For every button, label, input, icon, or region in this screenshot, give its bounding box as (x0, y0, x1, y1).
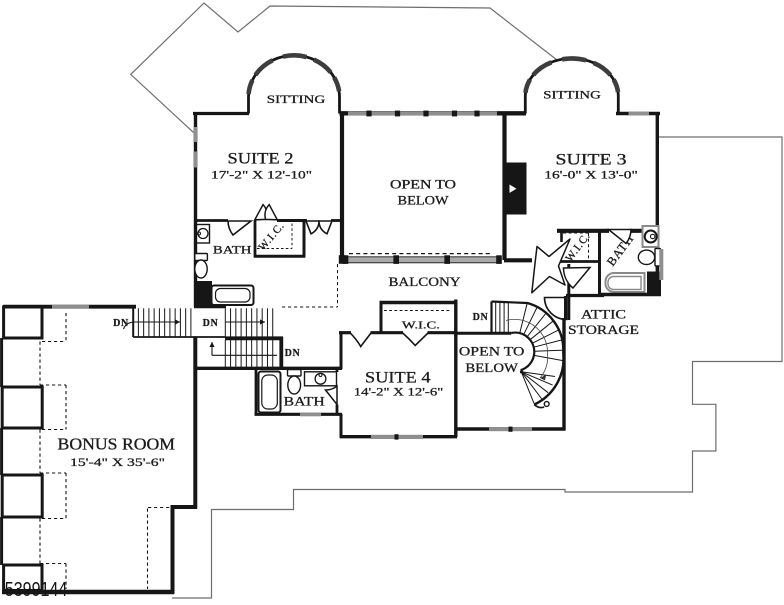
svg-text:DN: DN (113, 318, 129, 329)
svg-text:16'-0" X 13'-0": 16'-0" X 13'-0" (544, 168, 638, 182)
svg-text:BATH: BATH (284, 394, 325, 409)
svg-text:15'-4" X 35'-6": 15'-4" X 35'-6" (70, 455, 165, 469)
svg-text:BATH: BATH (213, 243, 252, 257)
svg-text:DN: DN (473, 312, 489, 323)
svg-text:ATTIC: ATTIC (581, 308, 626, 322)
svg-text:5399144: 5399144 (5, 579, 68, 600)
svg-text:STORAGE: STORAGE (568, 323, 639, 337)
svg-text:SUITE 2: SUITE 2 (228, 151, 294, 168)
svg-text:BELOW: BELOW (398, 194, 449, 208)
svg-text:OPEN TO: OPEN TO (459, 345, 525, 359)
svg-text:DN: DN (285, 348, 301, 359)
svg-text:DN: DN (203, 318, 219, 329)
svg-text:SITTING: SITTING (543, 90, 601, 102)
svg-text:BELOW: BELOW (465, 361, 518, 375)
svg-text:OPEN TO: OPEN TO (390, 178, 456, 192)
svg-text:14'-2" X 12'-6": 14'-2" X 12'-6" (354, 385, 444, 399)
svg-text:W.I.C.: W.I.C. (402, 321, 440, 332)
svg-text:BALCONY: BALCONY (389, 275, 461, 289)
svg-text:BONUS ROOM: BONUS ROOM (58, 435, 176, 454)
svg-text:SUITE 3: SUITE 3 (556, 152, 627, 169)
svg-text:SITTING: SITTING (267, 94, 326, 106)
svg-text:17'-2" X 12'-10": 17'-2" X 12'-10" (211, 168, 312, 182)
